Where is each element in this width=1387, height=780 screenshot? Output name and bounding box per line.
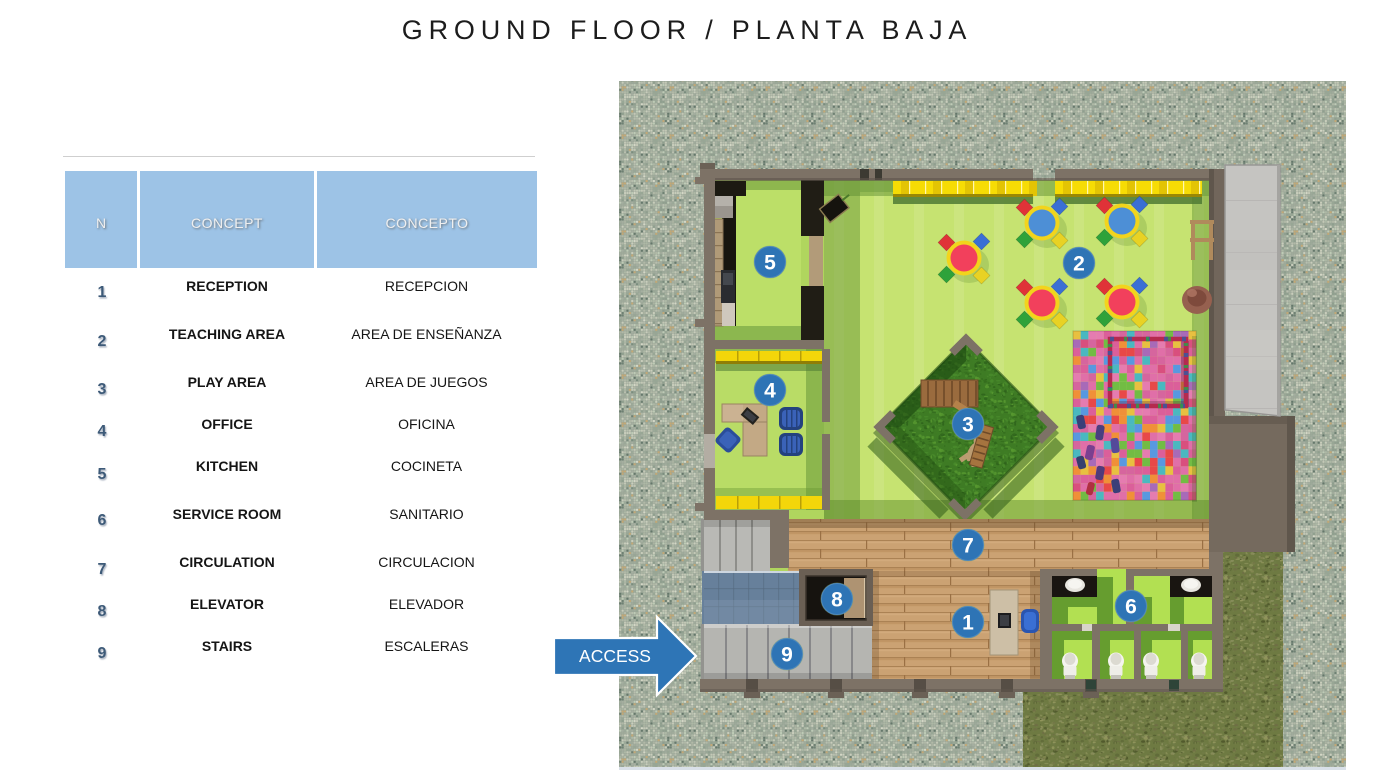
svg-text:1: 1 <box>962 612 974 635</box>
svg-text:2: 2 <box>1073 253 1085 276</box>
svg-text:ACCESS: ACCESS <box>579 646 651 666</box>
svg-text:3: 3 <box>962 414 974 437</box>
svg-text:8: 8 <box>831 589 843 612</box>
svg-text:7: 7 <box>962 535 974 558</box>
svg-text:5: 5 <box>764 252 776 275</box>
svg-text:4: 4 <box>764 380 776 403</box>
svg-text:6: 6 <box>1125 596 1137 619</box>
svg-text:9: 9 <box>781 644 793 667</box>
